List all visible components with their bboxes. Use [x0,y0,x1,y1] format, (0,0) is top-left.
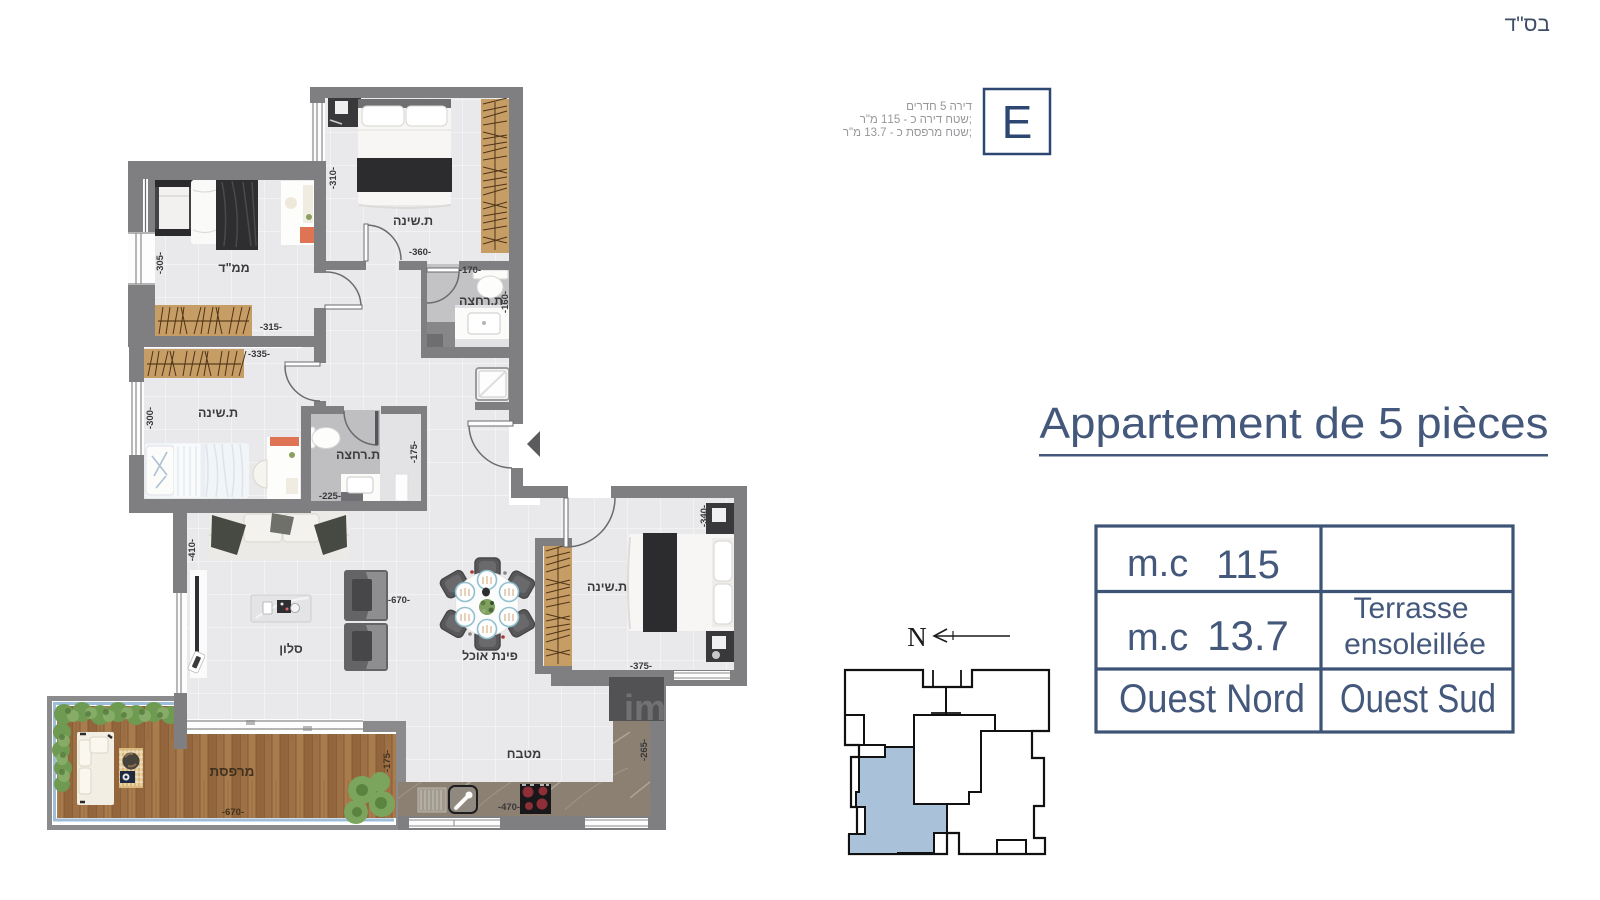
svg-text:מטבח: מטבח [507,747,541,761]
svg-text:ת.רחצה: ת.רחצה [459,294,503,308]
svg-text:ממ"ד: ממ"ד [218,261,249,275]
svg-text:-375-: -375- [630,661,652,672]
svg-text:Appartement de 5 pièces: Appartement de 5 pièces [1040,399,1549,448]
svg-text:Terrasse: Terrasse [1353,592,1468,625]
svg-text:פינת אוכל: פינת אוכל [462,649,518,663]
svg-text:Ouest Nord: Ouest Nord [1119,677,1305,721]
svg-text:ת.שינה: ת.שינה [587,580,627,594]
svg-text:Ouest Sud: Ouest Sud [1340,677,1496,721]
svg-text:-360-: -360- [409,247,431,258]
svg-text:-225-: -225- [319,491,341,502]
svg-text:דירה 5 חדרים: דירה 5 חדרים [906,101,973,113]
svg-text:13.7: 13.7 [1207,612,1289,659]
svg-text:-670-: -670- [222,807,244,818]
svg-text:ת.שינה: ת.שינה [393,214,433,228]
svg-text:שטח דירה כ - 115 מ"ר;: שטח דירה כ - 115 מ"ר; [860,114,972,126]
svg-text:שטח מרפסת כ - 13.7 מ"ר;: שטח מרפסת כ - 13.7 מ"ר; [843,127,972,139]
svg-text:-305-: -305- [155,252,166,274]
svg-text:סלון: סלון [279,642,303,656]
svg-text:-310-: -310- [328,167,339,189]
svg-text:-470-: -470- [498,802,520,813]
svg-text:-300-: -300- [145,407,156,429]
svg-text:E: E [1002,96,1033,148]
svg-text:m.c: m.c [1127,617,1188,659]
svg-text:im: im [624,687,666,728]
svg-text:-340-: -340- [699,505,710,527]
svg-text:-175-: -175- [382,750,393,772]
svg-text:115: 115 [1216,543,1280,587]
svg-text:m.c: m.c [1127,543,1188,585]
svg-text:-315-: -315- [260,322,282,333]
svg-text:-335-: -335- [248,349,270,360]
svg-text:-670-: -670- [388,595,410,606]
svg-text:-160-: -160- [500,291,511,313]
svg-text:-175-: -175- [409,441,420,463]
svg-text:ת.שינה: ת.שינה [198,406,238,420]
svg-text:-170-: -170- [459,265,481,276]
svg-text:מרפסת: מרפסת [210,764,255,779]
svg-text:ensoleillée: ensoleillée [1344,628,1486,661]
svg-text:-410-: -410- [187,539,198,561]
svg-text:ת.רחצה: ת.רחצה [336,448,380,462]
svg-text:-265-: -265- [639,739,650,761]
svg-text:N: N [907,622,927,652]
svg-text:בס"ד: בס"ד [1505,13,1550,36]
